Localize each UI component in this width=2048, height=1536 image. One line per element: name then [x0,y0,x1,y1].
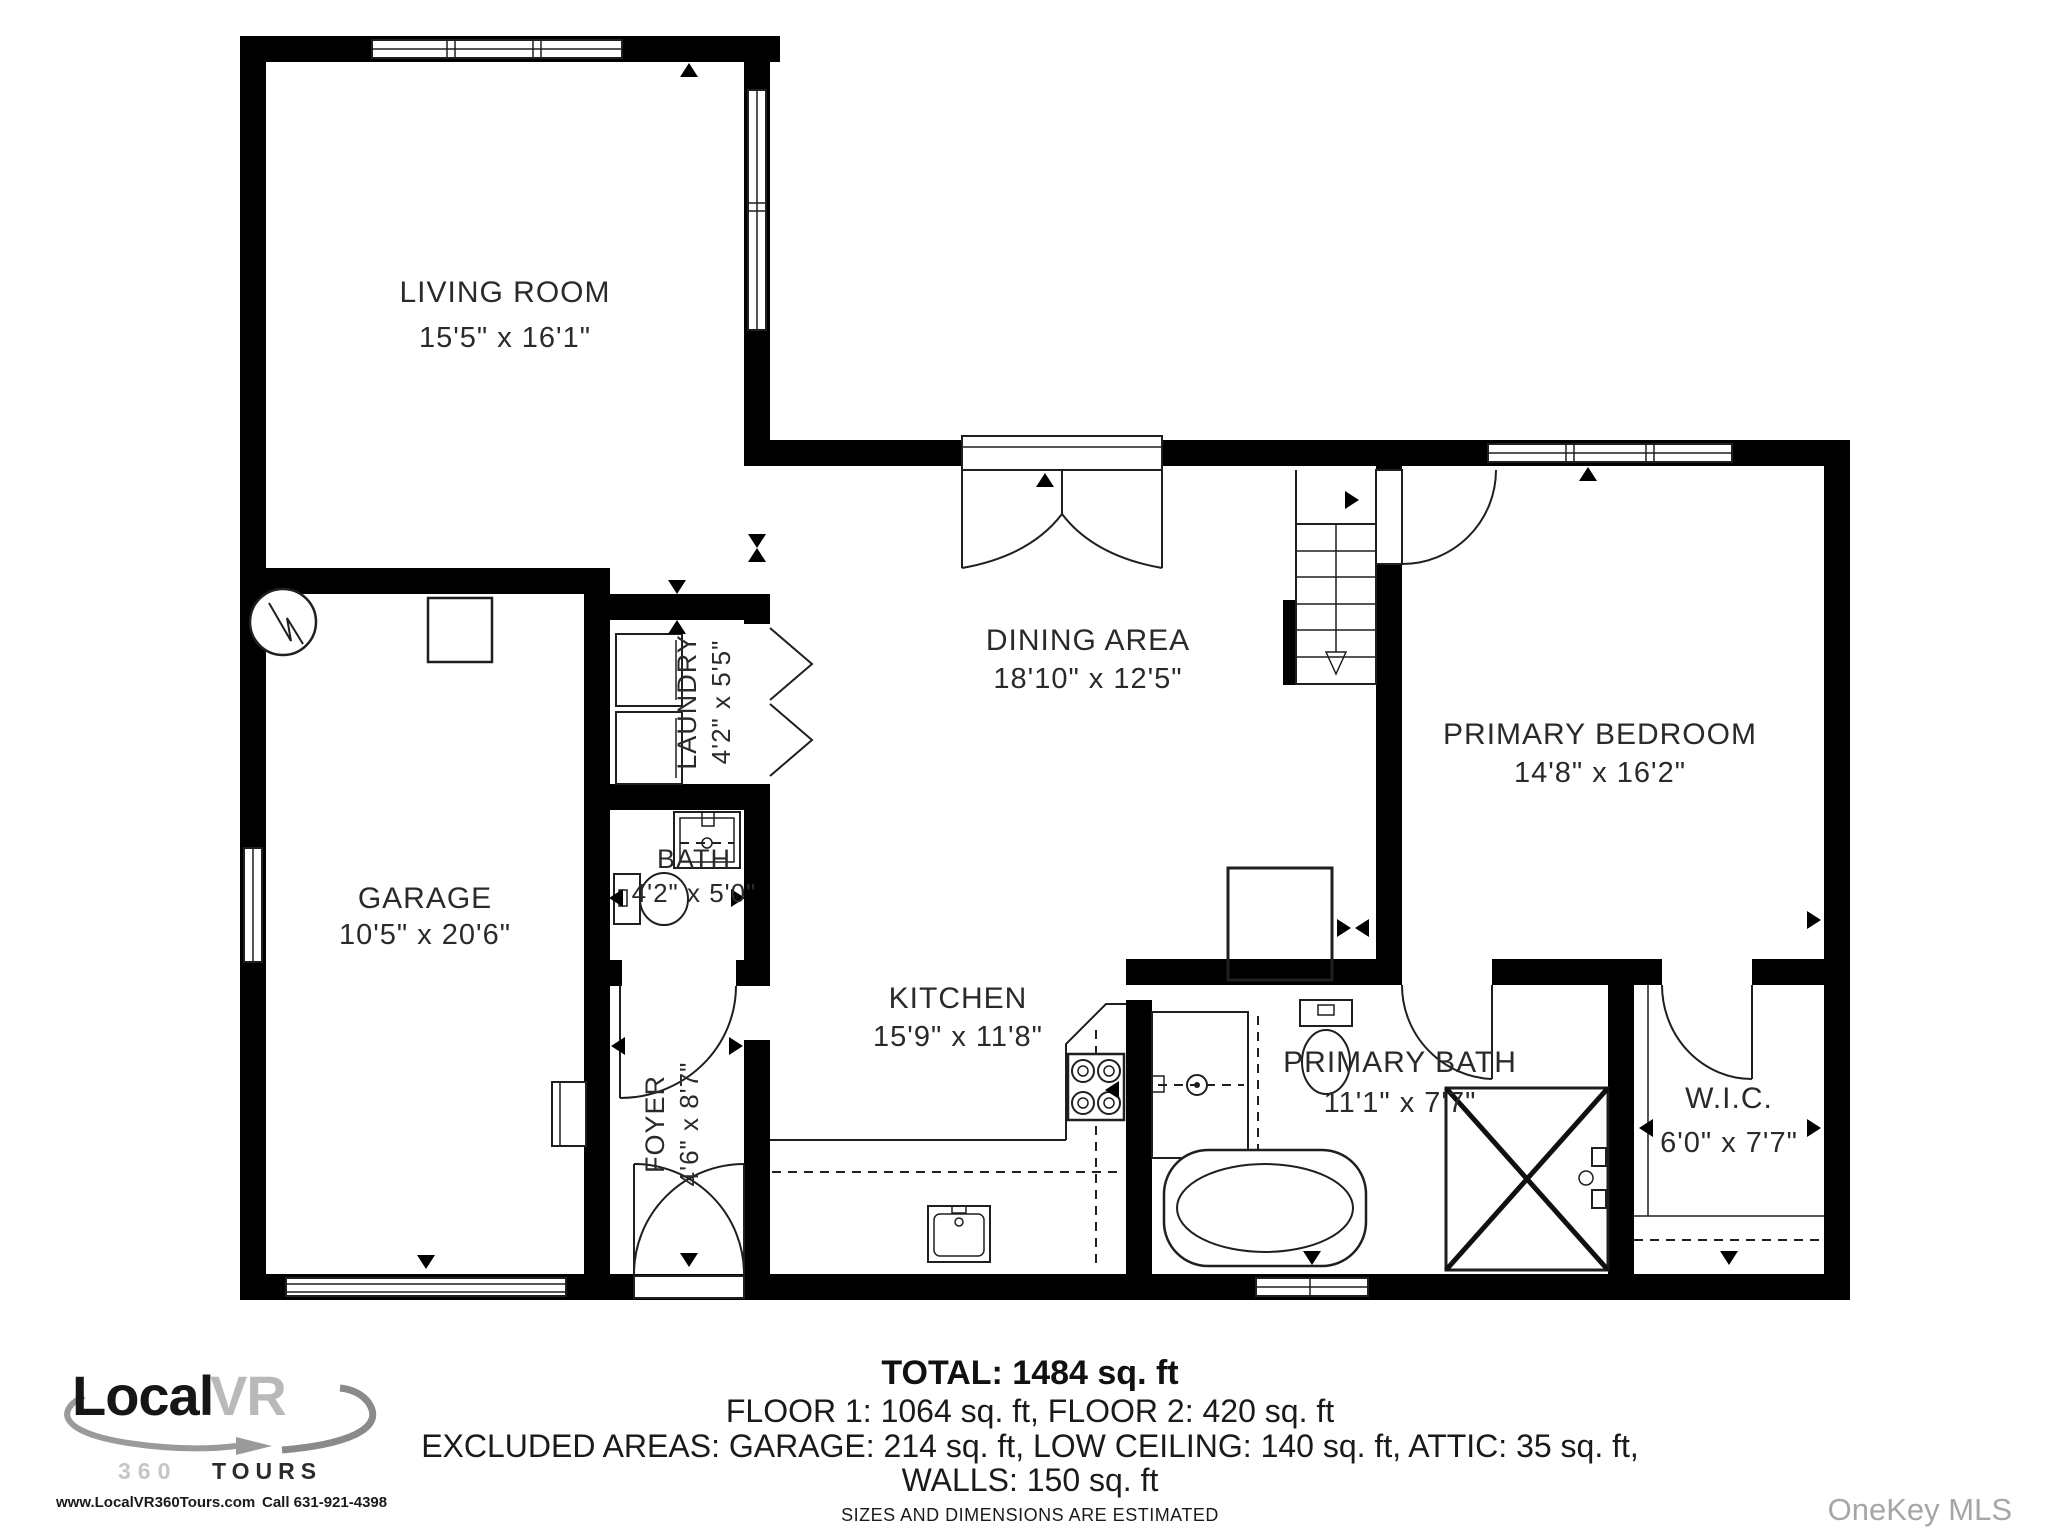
marker-triangle [1720,1251,1738,1265]
foyer-dims: 4'6" x 8'7" [674,1062,704,1187]
marker-triangle [729,1037,743,1055]
primary-bedroom-dims: 14'8" x 16'2" [1514,757,1686,789]
floor-plan-canvas: LIVING ROOM 15'5" x 16'1" DINING AREA 18… [0,0,2048,1536]
marker-triangle [668,580,686,594]
wall [584,594,610,1274]
water-heater [250,589,316,655]
logo-text-tours: TOURS [212,1458,322,1484]
wall [1283,600,1296,685]
marker-triangle [1036,473,1054,487]
wall [610,784,770,810]
wall [1824,440,1850,1300]
bath-label: BATH [657,844,731,874]
marker-triangle [680,1253,698,1267]
primary-bath-dims: 11'1" x 7'7" [1324,1087,1477,1119]
laundry-label-group: LAUNDRY 4'2" x 5'5" [672,634,736,770]
walls-area: WALLS: 150 sq. ft [902,1462,1159,1498]
marker-triangle [668,620,686,634]
mls-watermark: OneKey MLS [1828,1492,2012,1527]
garage-dims: 10'5" x 20'6" [339,919,511,951]
living-room-dims: 15'5" x 16'1" [419,322,591,354]
marker-triangle [1337,919,1351,937]
wall [1376,560,1402,985]
disclaimer: SIZES AND DIMENSIONS ARE ESTIMATED [841,1505,1219,1525]
marker-triangle [1807,1119,1821,1137]
interior-walls [240,466,1824,1274]
marker-triangle [1807,911,1821,929]
garage-door [286,1278,566,1296]
logo-text-local: Local [72,1364,213,1427]
windows [244,40,1732,1296]
primary-bedroom-label: PRIMARY BEDROOM [1443,718,1757,751]
french-doors [962,436,1162,568]
living-room-top-window [372,40,622,58]
floor-plan-page: LIVING ROOM 15'5" x 16'1" DINING AREA 18… [0,0,2048,1536]
logo-swoosh-right [282,1388,373,1450]
marker-triangle [417,1255,435,1269]
wic-door [1662,985,1752,1079]
laundry-dims: 4'2" x 5'5" [706,640,736,765]
door-arc [962,514,1062,568]
wall [736,960,770,986]
primary-bath-label: PRIMARY BATH [1283,1046,1517,1079]
excluded-areas: EXCLUDED AREAS: GARAGE: 214 sq. ft, LOW … [421,1428,1639,1464]
vanity-sink [1152,1012,1258,1158]
laundry-label: LAUNDRY [672,634,702,770]
logo-text-vr: VR [210,1364,286,1427]
dining-dims: 18'10" x 12'5" [993,663,1182,695]
kitchen-dims: 15'9" x 11'8" [873,1021,1043,1053]
laundry-bifold-doors [744,624,812,780]
logo-website: www.LocalVR360Tours.com [55,1494,255,1511]
kitchen-sink [928,1206,990,1262]
wall [744,1040,770,1274]
floor-areas: FLOOR 1: 1064 sq. ft, FLOOR 2: 420 sq. f… [726,1393,1334,1429]
dining-label: DINING AREA [986,624,1190,657]
marker-triangle [1345,491,1359,509]
room-labels: LIVING ROOM 15'5" x 16'1" DINING AREA 18… [339,276,1798,1186]
wall [1126,1000,1152,1274]
localvr-logo: Local VR 360 TOURS www.LocalVR360Tours.c… [55,1364,387,1511]
wall [610,960,622,986]
wall [1608,985,1634,1274]
total-area: TOTAL: 1484 sq. ft [881,1354,1178,1392]
wall [1752,959,1824,985]
shower-door-hardware [1579,1148,1606,1208]
garage-side-window [244,848,262,962]
staircase [1296,470,1376,684]
primary-bedroom-window [1488,444,1732,462]
bath-bottom-window [1256,1278,1368,1296]
marker-triangle [609,889,623,907]
bath-dims: 4'2" x 5'0" [632,878,757,908]
foyer-label: FOYER [640,1075,670,1173]
logo-phone: Call 631-921-4398 [262,1494,387,1511]
area-summary: TOTAL: 1484 sq. ft FLOOR 1: 1064 sq. ft,… [421,1354,1639,1525]
stair-down-arrow [1326,652,1346,674]
kitchen-label: KITCHEN [889,982,1028,1015]
door-arc [1402,470,1496,564]
logo-swoosh-arrow [236,1437,272,1455]
wic-dims: 6'0" x 7'7" [1660,1127,1798,1159]
primary-bath-fixtures [1152,1000,1608,1270]
bathtub [1164,1150,1366,1266]
garage-fixtures [250,589,586,1146]
marker-triangle [1639,1119,1653,1137]
marker-triangle [611,1037,625,1055]
wall [1492,959,1662,985]
marker-triangle [748,548,766,562]
marker-triangle [680,63,698,77]
utility-panel [552,1082,586,1146]
wall [744,594,770,624]
marker-triangle [748,534,766,548]
living-room-label: LIVING ROOM [399,276,610,309]
marker-triangle [1579,467,1597,481]
door-arc [1062,514,1162,568]
wic-label: W.I.C. [1685,1082,1773,1115]
door-arc [1662,985,1752,1079]
living-room-side-window [748,90,766,330]
primary-bedroom-door [1376,470,1496,564]
garage-label: GARAGE [358,882,492,915]
foyer-label-group: FOYER 4'6" x 8'7" [640,1062,704,1187]
furnace [428,598,492,662]
logo-text-360: 360 [118,1458,177,1484]
wall [240,36,266,1300]
marker-triangle [1355,919,1369,937]
